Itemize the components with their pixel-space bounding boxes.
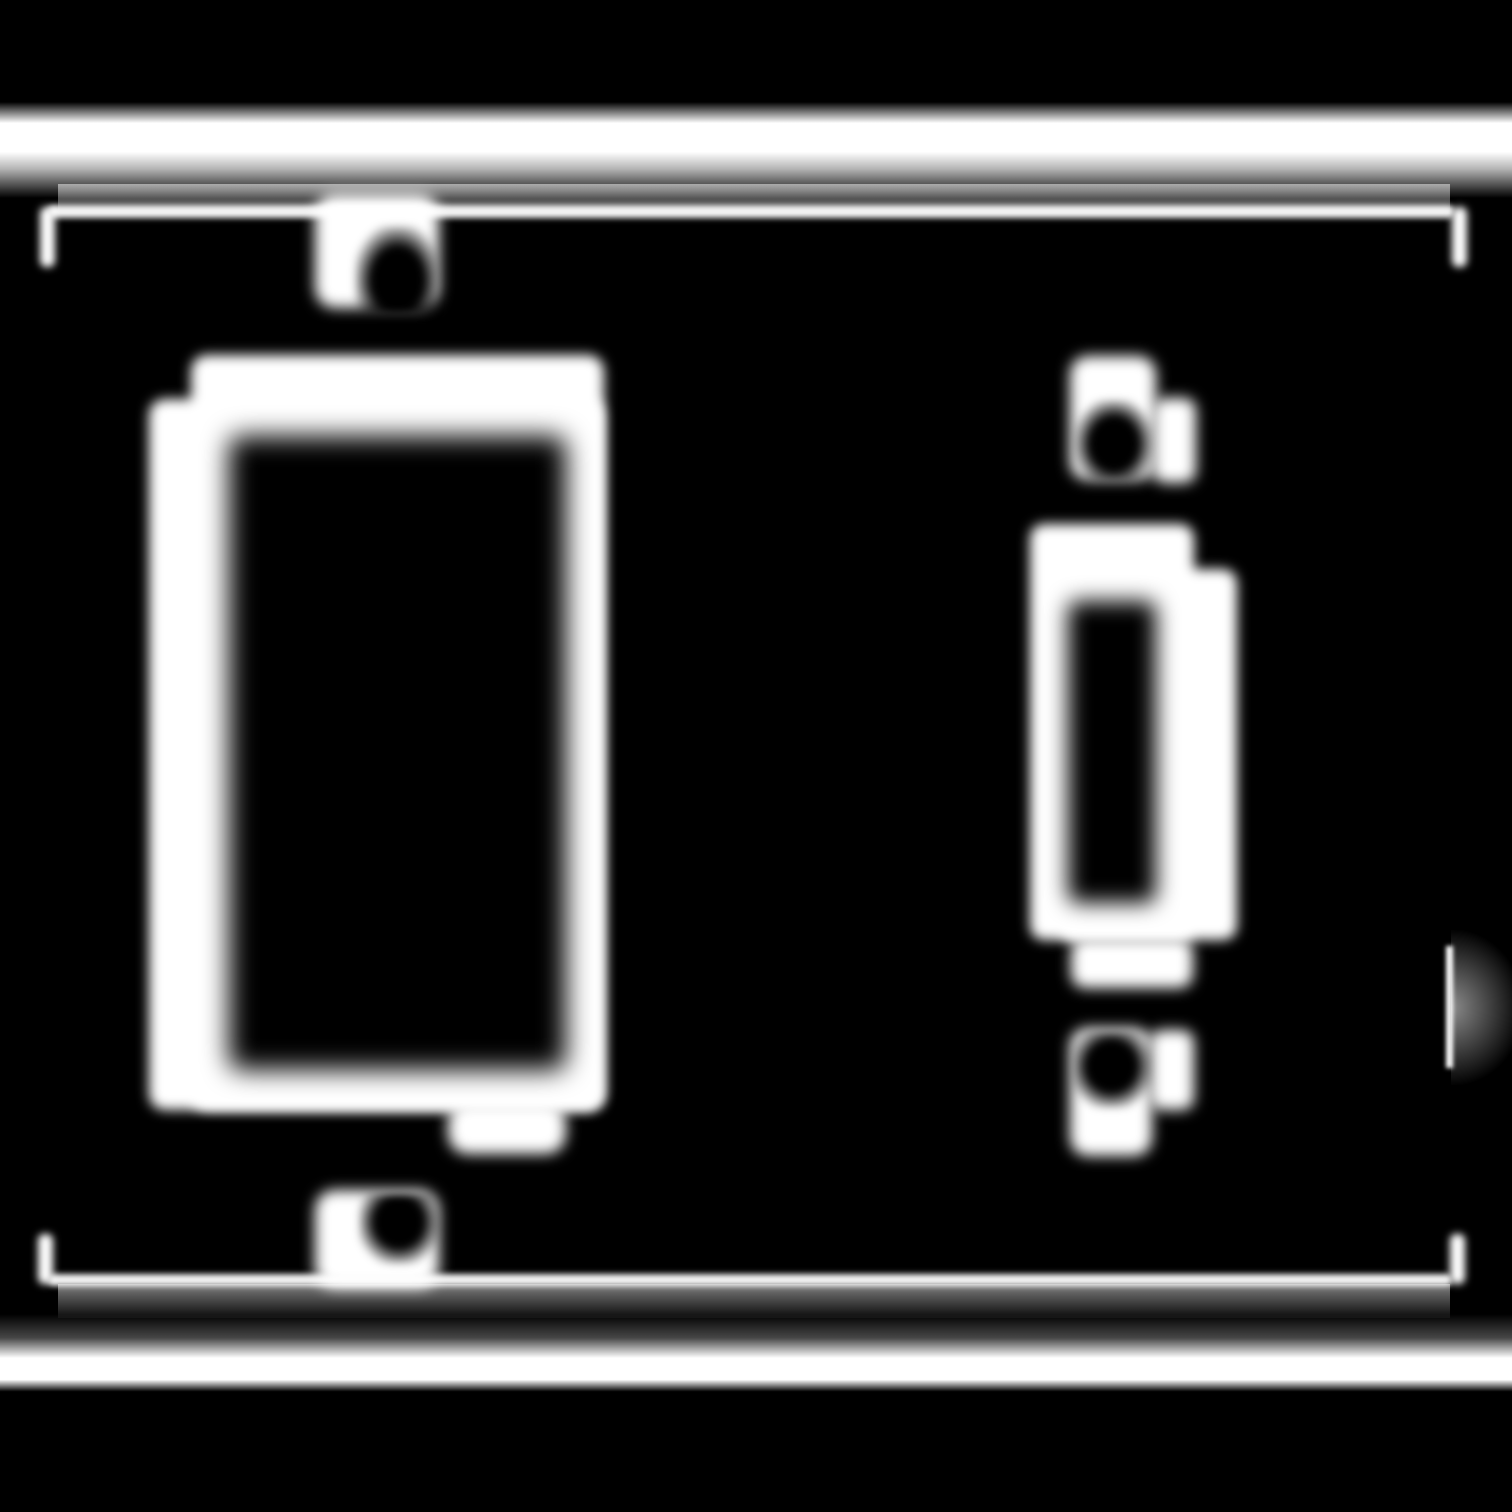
plate-right-edge-glow <box>1451 930 1512 1085</box>
plate-outline-bottom-right-corner <box>1450 1234 1465 1284</box>
plate-outline-top-right-corner <box>1452 207 1467 267</box>
wall-plate-line-art <box>0 0 1512 1512</box>
plate-outline-bottom-left-corner <box>38 1234 53 1284</box>
right-top-screw-slot <box>1075 400 1153 480</box>
plate-outline-top-left-corner <box>40 207 55 267</box>
right-bottom-screw-hole-step <box>1150 1030 1194 1110</box>
left-top-screw-slot <box>355 226 437 314</box>
plate-bottom-edge-highlight <box>0 1314 1512 1394</box>
toggle-opening-cutout <box>1068 601 1156 903</box>
rocker-opening-bottom-tab <box>448 1102 566 1154</box>
toggle-opening-bottom-tab <box>1071 938 1193 988</box>
rocker-opening-cutout <box>229 436 566 1070</box>
right-bottom-screw-slot <box>1074 1032 1152 1108</box>
left-bottom-screw-slot <box>359 1194 439 1264</box>
plate-outline-top-edge <box>48 205 1454 218</box>
right-top-screw-hole-step <box>1153 398 1196 483</box>
plate-bottom-inner-shadow <box>58 1284 1450 1318</box>
